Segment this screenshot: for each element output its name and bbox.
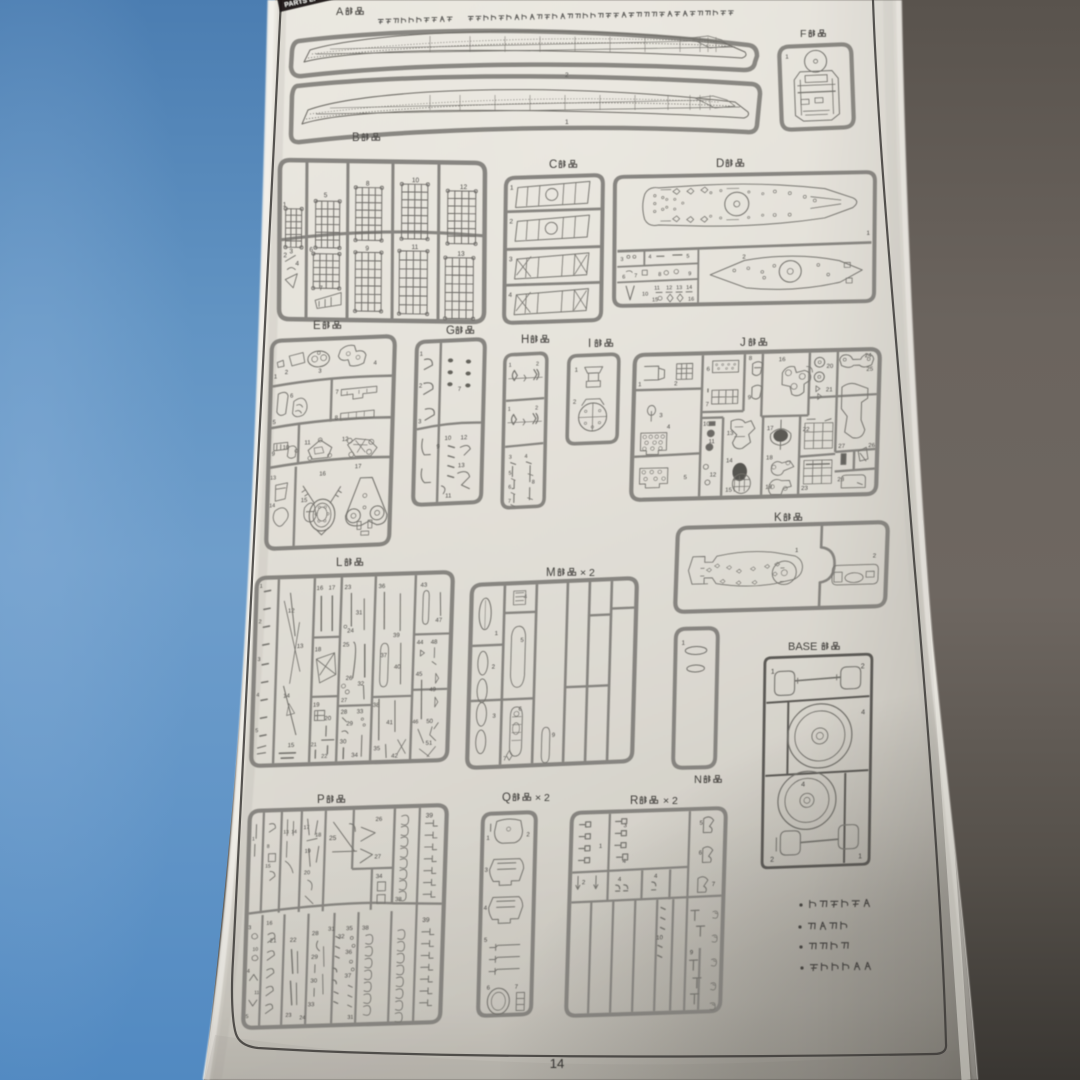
svg-text:1: 1 [771,669,775,676]
svg-text:35: 35 [373,746,381,752]
svg-text:5: 5 [245,1014,248,1020]
svg-text:9: 9 [688,271,691,277]
svg-text:6: 6 [309,247,313,254]
svg-text:× 2: × 2 [580,567,595,579]
svg-text:15: 15 [301,498,308,504]
svg-text:10: 10 [445,436,452,442]
svg-text:37: 37 [380,653,388,659]
svg-text:5: 5 [508,471,511,477]
svg-text:19: 19 [305,849,311,855]
svg-text:M: M [546,567,556,579]
svg-text:1: 1 [795,548,799,554]
svg-text:17: 17 [355,464,362,470]
svg-text:27: 27 [341,698,347,704]
svg-text:26: 26 [868,443,876,449]
svg-text:10: 10 [252,947,258,953]
svg-text:× 2: × 2 [535,792,550,804]
svg-text:13: 13 [458,463,465,469]
svg-text:18: 18 [766,455,774,461]
svg-text:21: 21 [311,742,317,748]
svg-text:29: 29 [311,955,319,961]
svg-text:15: 15 [652,297,658,303]
svg-text:4: 4 [861,709,865,716]
svg-text:31: 31 [356,610,364,616]
svg-text:33: 33 [308,1002,316,1008]
svg-text:30: 30 [310,978,318,984]
svg-text:11: 11 [304,440,310,446]
svg-text:1: 1 [681,640,685,647]
svg-text:50: 50 [426,719,434,725]
svg-text:18: 18 [315,647,323,653]
svg-text:16: 16 [319,471,326,477]
svg-text:4: 4 [648,254,651,260]
svg-text:1: 1 [510,185,514,192]
svg-text:4: 4 [256,693,259,699]
svg-text:16: 16 [779,357,787,363]
svg-text:C: C [549,159,557,171]
svg-text:46: 46 [412,719,418,725]
svg-text:26: 26 [375,817,383,823]
svg-text:2: 2 [861,663,865,670]
svg-text:7: 7 [508,499,511,505]
svg-text:2: 2 [770,857,774,864]
svg-text:7: 7 [634,273,637,279]
svg-text:24: 24 [347,628,355,634]
svg-text:K: K [774,512,782,524]
svg-text:31: 31 [347,1015,353,1021]
svg-text:28: 28 [312,931,320,937]
svg-text:8: 8 [658,272,661,278]
svg-text:22: 22 [290,938,298,944]
svg-text:43: 43 [420,583,428,589]
svg-text:18: 18 [315,832,321,838]
svg-text:13: 13 [270,475,276,481]
svg-text:16: 16 [266,921,272,927]
svg-text:11: 11 [254,990,260,996]
svg-text:12: 12 [666,285,672,291]
svg-text:2: 2 [535,405,538,411]
svg-text:30: 30 [340,739,348,745]
svg-text:1: 1 [866,231,869,237]
svg-text:25: 25 [866,367,874,373]
svg-text:7: 7 [705,402,709,408]
svg-text:21: 21 [270,938,278,944]
svg-text:6: 6 [622,274,625,280]
svg-text:31: 31 [328,927,336,933]
svg-text:1: 1 [508,407,511,413]
svg-text:14: 14 [550,1056,564,1071]
svg-text:14: 14 [686,285,692,291]
svg-text:1: 1 [565,119,569,126]
svg-text:7: 7 [503,756,506,762]
svg-text:44: 44 [417,640,425,646]
svg-text:5: 5 [324,192,328,199]
svg-text:20: 20 [826,364,834,370]
svg-text:5: 5 [686,254,689,260]
svg-text:23: 23 [801,486,809,492]
svg-text:10: 10 [283,445,290,451]
svg-text:1: 1 [274,374,277,380]
svg-text:47: 47 [435,618,443,624]
svg-text:24: 24 [299,1015,305,1021]
svg-text:4: 4 [524,454,527,460]
svg-text:16: 16 [688,297,694,303]
svg-text:2: 2 [258,619,261,625]
svg-text:15: 15 [288,743,296,749]
svg-text:10: 10 [412,177,420,184]
svg-text:3: 3 [509,256,513,263]
svg-text:27: 27 [838,444,845,450]
svg-text:29: 29 [346,721,354,727]
svg-text:16: 16 [316,586,324,592]
svg-text:41: 41 [386,720,394,726]
svg-text:12: 12 [461,435,468,441]
svg-text:1: 1 [509,363,512,369]
svg-text:21: 21 [826,387,834,393]
svg-text:11: 11 [445,493,452,499]
svg-text:3: 3 [509,455,512,461]
svg-text:28: 28 [341,710,349,716]
svg-text:34: 34 [376,874,384,880]
svg-text:36: 36 [345,950,353,956]
svg-text:7: 7 [335,390,338,396]
svg-text:48: 48 [431,640,439,646]
svg-text:26: 26 [346,676,354,682]
svg-text:13: 13 [283,829,289,835]
svg-text:3: 3 [257,657,260,663]
svg-text:19: 19 [313,703,321,709]
svg-text:32: 32 [338,934,346,940]
svg-text:13: 13 [676,285,682,291]
svg-text:11: 11 [654,286,660,292]
svg-text:D: D [716,158,724,170]
svg-text:2: 2 [283,252,287,259]
svg-text:2: 2 [492,665,495,671]
svg-text:4: 4 [508,292,512,299]
svg-text:2: 2 [742,255,745,261]
svg-text:8: 8 [267,844,270,850]
svg-text:B: B [352,132,360,144]
svg-text:35: 35 [346,926,354,932]
svg-text:N: N [694,774,702,786]
svg-text:14: 14 [291,829,297,835]
svg-text:9: 9 [272,452,275,458]
svg-text:17: 17 [328,585,336,591]
svg-text:J: J [740,337,746,349]
svg-text:4: 4 [295,261,299,268]
svg-text:12: 12 [710,472,717,478]
svg-text:4: 4 [247,969,250,975]
svg-text:3: 3 [248,925,251,931]
svg-text:37: 37 [344,973,352,979]
svg-text:2: 2 [536,361,539,367]
svg-text:L: L [336,557,343,569]
svg-text:23: 23 [344,585,352,591]
svg-text:8: 8 [366,181,370,188]
svg-text:I: I [588,338,591,350]
svg-text:17: 17 [767,426,774,432]
svg-text:34: 34 [351,753,359,759]
svg-text:45: 45 [416,672,424,678]
svg-text:14: 14 [726,458,734,464]
svg-text:2: 2 [285,370,288,376]
svg-text:5: 5 [255,728,258,734]
svg-text:10: 10 [642,292,648,298]
svg-text:15: 15 [725,488,733,494]
svg-text:27: 27 [374,854,382,860]
svg-text:P: P [317,794,325,806]
svg-text:G: G [446,325,455,337]
svg-text:11: 11 [411,244,418,251]
svg-text:7: 7 [319,285,323,292]
svg-text:39: 39 [393,633,401,639]
svg-text:36: 36 [378,584,386,590]
svg-text:49: 49 [429,687,437,693]
svg-text:10: 10 [656,935,664,941]
svg-text:39: 39 [426,812,434,819]
svg-text:R: R [630,795,638,807]
svg-text:39: 39 [422,917,430,924]
svg-text:1: 1 [252,836,255,842]
svg-text:38: 38 [362,926,370,932]
svg-text:51: 51 [425,741,433,747]
svg-text:2: 2 [674,381,678,387]
svg-text:H: H [521,334,529,346]
svg-text:12: 12 [460,184,468,191]
svg-text:20: 20 [324,716,332,722]
svg-text:A: A [336,6,344,18]
svg-text:25: 25 [329,835,337,842]
svg-text:3: 3 [289,248,293,255]
svg-text:BASE: BASE [788,641,817,653]
svg-text:1: 1 [858,853,862,860]
svg-text:× 2: × 2 [663,795,678,807]
svg-text:3: 3 [620,257,623,263]
svg-text:F: F [800,28,806,40]
svg-text:33: 33 [357,709,365,715]
svg-text:9: 9 [365,245,369,252]
svg-text:23: 23 [285,1013,291,1019]
svg-text:E: E [313,320,321,332]
svg-text:12: 12 [288,608,296,614]
svg-text:4: 4 [801,781,805,788]
svg-text:20: 20 [304,870,310,876]
svg-text:25: 25 [343,642,351,648]
svg-text:2: 2 [873,554,877,560]
svg-text:22: 22 [321,754,327,760]
svg-text:2: 2 [565,72,569,79]
svg-text:15: 15 [265,864,271,870]
svg-text:1: 1 [260,584,263,590]
svg-text:2: 2 [509,218,513,225]
svg-text:14: 14 [269,503,275,509]
svg-text:6: 6 [508,485,511,491]
svg-text:42: 42 [391,754,399,760]
svg-text:Q: Q [502,792,511,804]
svg-text:13: 13 [457,251,465,258]
svg-text:13: 13 [297,644,305,650]
svg-text:1: 1 [283,202,287,209]
svg-text:8: 8 [532,479,535,485]
